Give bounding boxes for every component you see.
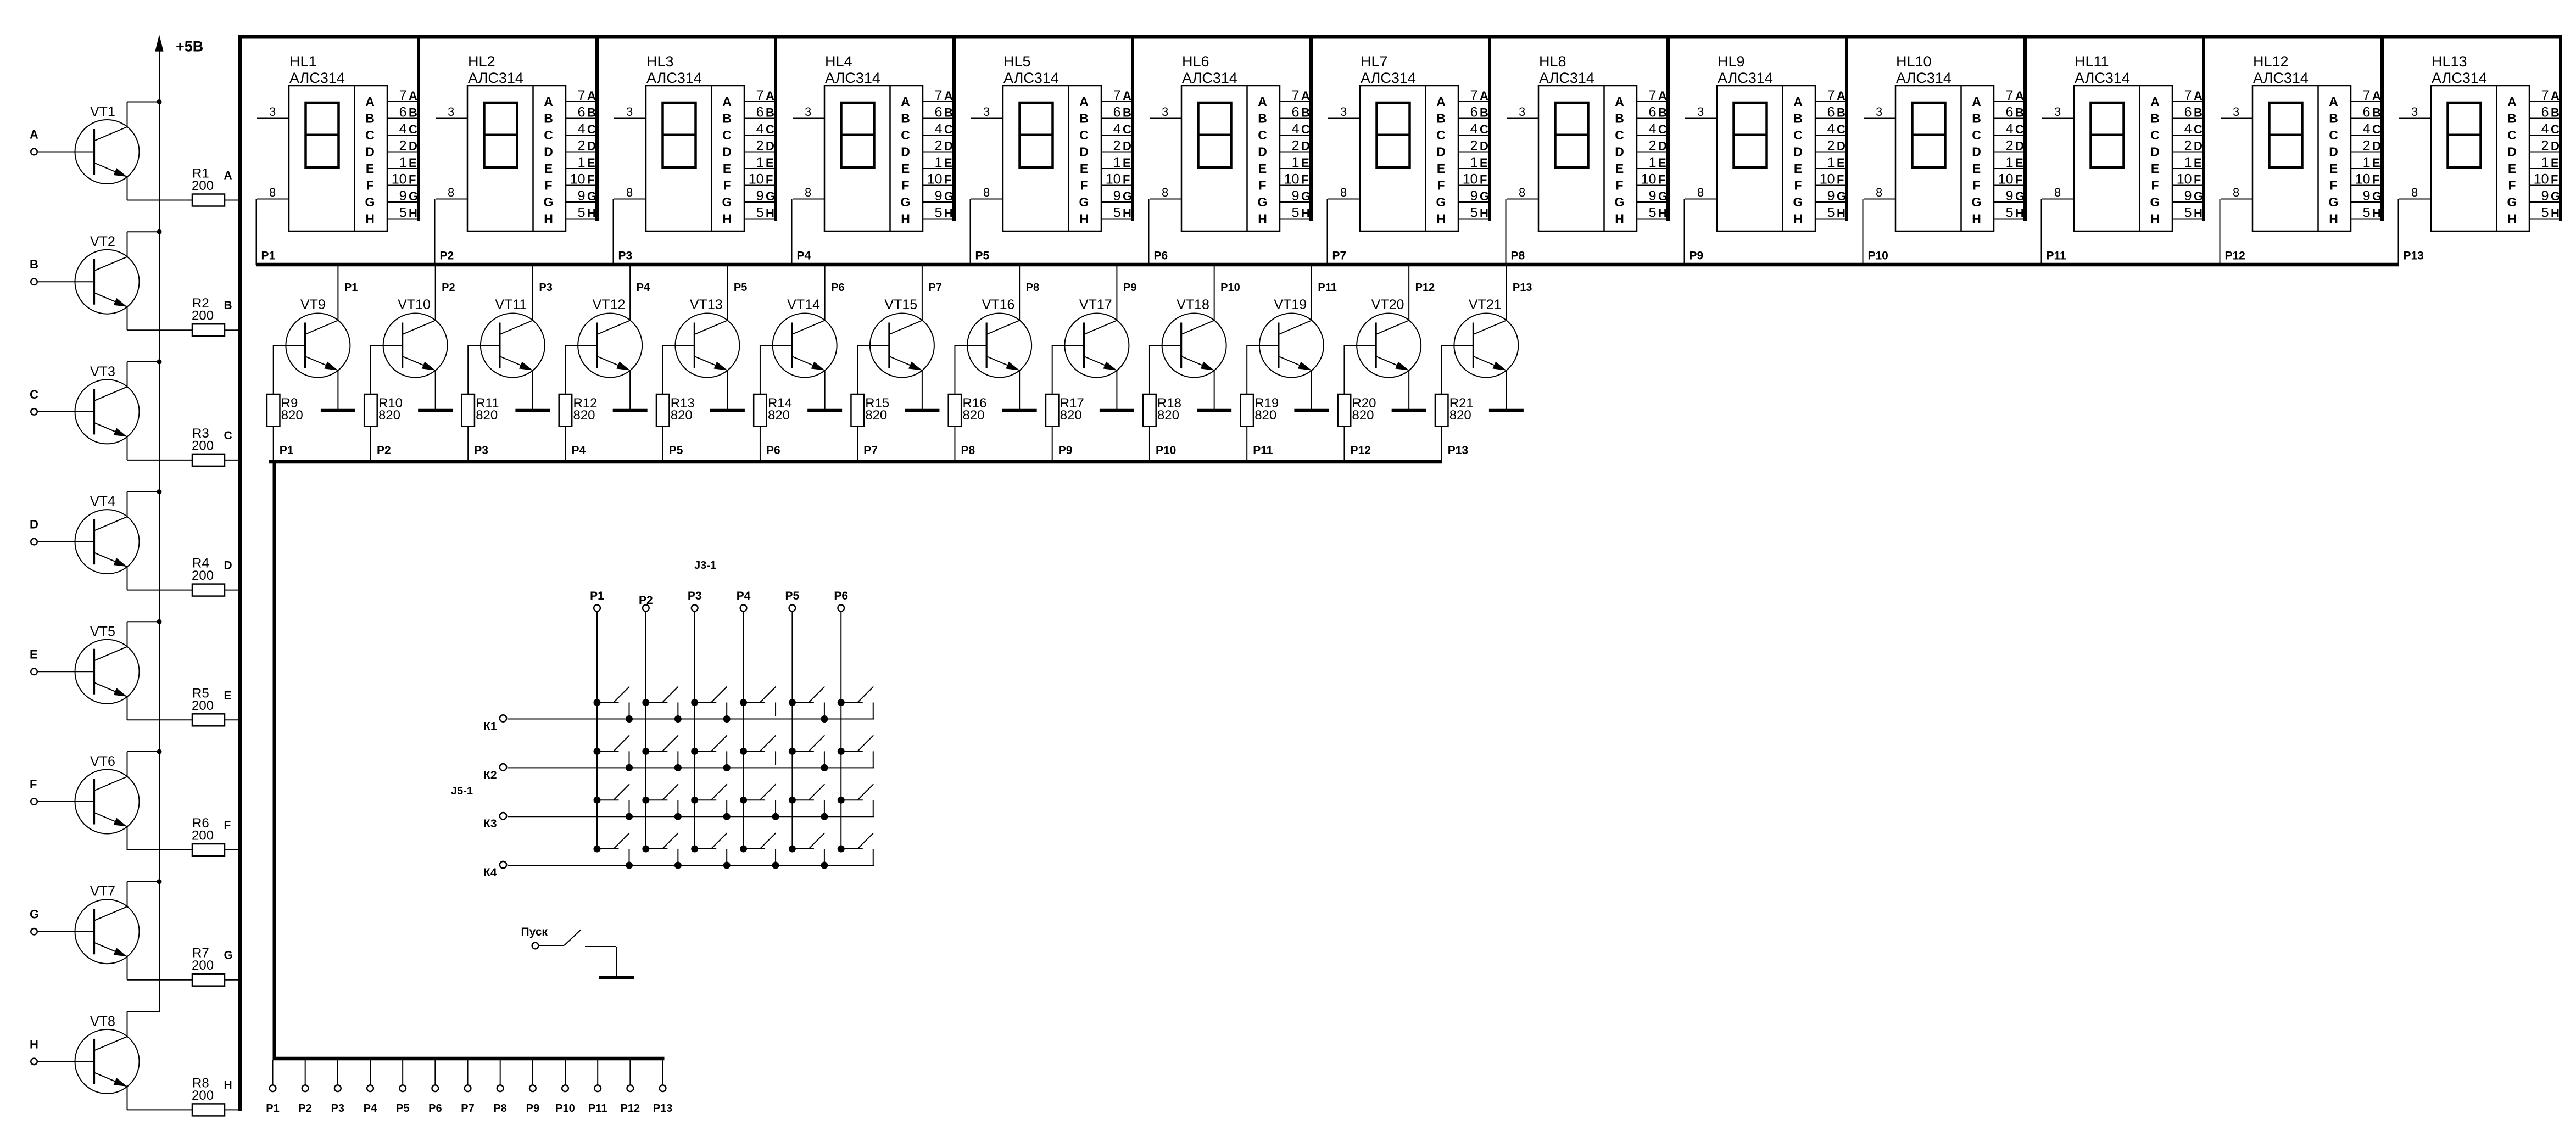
svg-text:B: B [1123,106,1131,120]
svg-text:10: 10 [1284,172,1300,187]
svg-text:P10: P10 [1220,282,1240,294]
svg-text:200: 200 [192,828,214,843]
svg-text:B: B [1972,111,1981,126]
svg-text:B: B [901,111,910,126]
svg-text:A: A [2329,94,2338,109]
svg-text:4: 4 [399,121,407,137]
svg-text:VT1: VT1 [90,104,115,120]
svg-text:200: 200 [192,178,214,193]
svg-text:8: 8 [626,186,633,199]
svg-text:9: 9 [2006,188,2014,204]
svg-text:200: 200 [192,698,214,713]
svg-text:HL7: HL7 [1361,53,1388,70]
svg-text:B: B [766,106,774,120]
svg-text:3: 3 [2411,105,2418,119]
svg-text:9: 9 [935,188,943,204]
svg-text:D: D [722,145,732,159]
svg-text:D: D [2372,139,2381,153]
svg-text:C: C [944,122,953,136]
svg-text:E: E [1972,161,1981,176]
svg-text:1: 1 [2541,155,2549,170]
svg-text:B: B [1837,106,1845,120]
svg-text:P10: P10 [555,1102,575,1115]
svg-text:H: H [2150,212,2160,226]
svg-text:6: 6 [1113,105,1121,120]
svg-text:P13: P13 [2404,250,2424,262]
svg-text:9: 9 [1113,188,1121,204]
svg-text:P1: P1 [280,444,294,457]
svg-text:G: G [544,195,554,209]
svg-text:P7: P7 [928,282,941,294]
svg-text:P2: P2 [440,250,454,262]
svg-text:P12: P12 [1350,444,1370,457]
svg-text:5: 5 [2363,205,2371,221]
svg-text:E: E [2151,161,2159,176]
svg-text:D: D [1480,139,1488,153]
svg-text:C: C [544,128,553,142]
svg-text:B: B [30,257,38,271]
svg-text:B: B [544,111,553,126]
svg-text:P4: P4 [364,1102,377,1115]
svg-text:F: F [1794,178,1802,193]
svg-text:E: E [1080,161,1088,176]
svg-text:HL12: HL12 [2253,53,2289,70]
svg-text:E: E [723,161,731,176]
svg-text:A: A [722,94,732,109]
svg-text:F: F [2015,173,2022,187]
svg-text:B: B [1793,111,1803,126]
svg-text:9: 9 [756,188,764,204]
svg-text:4: 4 [2363,121,2371,137]
svg-text:H: H [1972,212,1981,226]
svg-text:АЛС314: АЛС314 [2253,70,2309,86]
svg-text:3: 3 [448,105,454,119]
svg-text:4: 4 [578,121,586,137]
svg-text:B: B [2194,106,2203,120]
svg-text:1: 1 [2006,155,2014,170]
svg-text:P7: P7 [461,1102,474,1115]
svg-text:A: A [2551,89,2560,103]
svg-text:A: A [2194,89,2203,103]
svg-text:E: E [1301,156,1309,170]
svg-text:VT15: VT15 [884,297,917,312]
svg-text:F: F [766,173,773,187]
svg-text:АЛС314: АЛС314 [289,70,345,86]
svg-text:C: C [2194,122,2203,136]
svg-text:A: A [2507,94,2517,109]
svg-text:F: F [1437,178,1445,193]
svg-text:8: 8 [2054,186,2061,199]
svg-text:H: H [1079,212,1089,226]
svg-text:D: D [365,145,375,159]
svg-text:C: C [1123,122,1131,136]
svg-text:8: 8 [1876,186,1882,199]
svg-text:VT7: VT7 [90,884,115,899]
svg-text:A: A [1258,94,1267,109]
svg-text:820: 820 [281,408,303,423]
svg-text:5: 5 [1649,205,1657,221]
svg-text:G: G [2372,189,2382,203]
svg-text:7: 7 [2006,88,2014,103]
svg-text:J3-1: J3-1 [694,559,716,572]
svg-text:E: E [2551,156,2559,170]
svg-text:5: 5 [1827,205,1835,221]
svg-text:3: 3 [1876,105,1882,119]
svg-text:C: C [1837,122,1845,136]
svg-text:G: G [1301,189,1311,203]
svg-text:P1: P1 [344,282,358,294]
svg-text:D: D [1079,145,1089,159]
svg-text:B: B [1615,111,1624,126]
svg-text:820: 820 [671,408,693,423]
svg-text:E: E [1794,161,1802,176]
svg-text:P9: P9 [1690,250,1704,262]
svg-text:2: 2 [756,138,764,154]
svg-text:1: 1 [399,155,407,170]
svg-text:H: H [722,212,732,226]
svg-text:3: 3 [805,105,811,119]
svg-text:P2: P2 [442,282,455,294]
svg-text:D: D [1436,145,1446,159]
svg-text:820: 820 [573,408,595,423]
svg-text:G: G [2551,189,2560,203]
svg-text:H: H [2015,206,2024,220]
svg-text:10: 10 [570,172,586,187]
svg-text:G: G [1837,189,1846,203]
svg-text:P4: P4 [797,250,811,262]
svg-text:F: F [1080,178,1088,193]
svg-text:5: 5 [1292,205,1300,221]
svg-text:H: H [587,206,596,220]
svg-text:P4: P4 [737,590,751,602]
svg-text:C: C [2015,122,2024,136]
svg-text:10: 10 [1641,172,1657,187]
svg-text:VT2: VT2 [90,234,115,249]
svg-text:E: E [224,689,232,702]
svg-text:820: 820 [1449,408,1471,423]
svg-text:D: D [1301,139,1310,153]
svg-text:HL13: HL13 [2432,53,2467,70]
svg-text:200: 200 [192,568,214,583]
svg-text:E: E [2194,156,2202,170]
svg-text:D: D [766,139,774,153]
svg-text:820: 820 [476,408,498,423]
svg-text:10: 10 [2355,172,2371,187]
svg-text:B: B [2329,111,2338,126]
svg-text:F: F [901,178,909,193]
svg-text:C: C [1258,128,1267,142]
svg-text:F: F [2194,173,2201,187]
svg-text:VT4: VT4 [90,494,115,510]
svg-text:3: 3 [1162,105,1168,119]
svg-text:820: 820 [1254,408,1276,423]
svg-text:C: C [1301,122,1310,136]
svg-text:D: D [1123,139,1131,153]
svg-text:3: 3 [2233,105,2239,119]
svg-text:F: F [2508,178,2516,193]
svg-text:B: B [409,106,417,120]
svg-text:9: 9 [1649,188,1657,204]
svg-text:F: F [2329,178,2337,193]
svg-text:H: H [1123,206,1131,220]
svg-text:D: D [2150,145,2160,159]
svg-text:H: H [1301,206,1310,220]
svg-text:G: G [1480,189,1489,203]
svg-text:6: 6 [2006,105,2014,120]
svg-text:3: 3 [1697,105,1704,119]
svg-text:5: 5 [2541,205,2549,221]
svg-text:A: A [2015,89,2024,103]
svg-text:C: C [1480,122,1488,136]
svg-text:G: G [1793,195,1803,209]
svg-text:P11: P11 [588,1102,607,1115]
svg-text:HL1: HL1 [289,53,317,70]
svg-text:G: G [722,195,732,209]
svg-text:C: C [901,128,910,142]
svg-text:4: 4 [1292,121,1300,137]
svg-text:H: H [2329,212,2338,226]
svg-text:К1: К1 [483,720,497,733]
svg-text:К2: К2 [483,769,497,781]
svg-text:C: C [224,429,232,442]
svg-text:A: A [1480,89,1488,103]
svg-text:B: B [365,111,375,126]
svg-text:VT3: VT3 [90,364,115,379]
svg-text:5: 5 [1470,205,1478,221]
svg-text:1: 1 [756,155,764,170]
svg-text:F: F [1972,178,1980,193]
svg-text:D: D [1658,139,1667,153]
svg-text:9: 9 [399,188,407,204]
svg-text:H: H [1658,206,1667,220]
svg-text:P5: P5 [734,282,747,294]
svg-text:9: 9 [1470,188,1478,204]
svg-text:G: G [2329,195,2339,209]
svg-text:C: C [587,122,596,136]
svg-text:3: 3 [626,105,633,119]
svg-text:4: 4 [1827,121,1835,137]
svg-text:D: D [2329,145,2338,159]
svg-text:9: 9 [2363,188,2371,204]
svg-text:P9: P9 [526,1102,539,1115]
svg-text:3: 3 [2054,105,2061,119]
svg-text:10: 10 [1463,172,1478,187]
svg-text:G: G [2194,189,2203,203]
svg-text:VT14: VT14 [787,297,820,312]
svg-text:C: C [2329,128,2338,142]
svg-text:E: E [1615,161,1624,176]
svg-text:D: D [2507,145,2517,159]
svg-text:P12: P12 [2225,250,2245,262]
svg-text:D: D [1972,145,1981,159]
svg-text:H: H [2507,212,2517,226]
svg-text:F: F [587,173,594,187]
svg-text:A: A [1972,94,1981,109]
svg-text:G: G [901,195,911,209]
svg-text:7: 7 [2363,88,2371,103]
svg-text:C: C [766,122,774,136]
svg-text:8: 8 [448,186,454,199]
svg-text:10: 10 [749,172,764,187]
svg-text:P6: P6 [766,444,780,457]
svg-text:F: F [2551,173,2558,187]
svg-text:P3: P3 [688,590,702,602]
svg-text:F: F [224,819,231,832]
svg-text:9: 9 [1292,188,1300,204]
svg-text:+5В: +5В [176,38,203,55]
svg-text:P1: P1 [266,1102,279,1115]
svg-text:H: H [1436,212,1446,226]
svg-text:VT20: VT20 [1371,297,1404,312]
svg-text:P2: P2 [377,444,391,457]
svg-text:P2: P2 [298,1102,311,1115]
svg-text:7: 7 [399,88,407,103]
svg-text:3: 3 [983,105,990,119]
svg-text:3: 3 [269,105,276,119]
svg-text:J5-1: J5-1 [451,785,473,797]
svg-text:P11: P11 [1318,282,1336,294]
svg-text:C: C [1615,128,1624,142]
svg-text:B: B [1258,111,1267,126]
svg-text:G: G [2015,189,2025,203]
svg-text:G: G [2150,195,2160,209]
svg-text:АЛС314: АЛС314 [1718,70,1773,86]
svg-text:E: E [2372,156,2380,170]
svg-text:H: H [30,1037,38,1051]
svg-text:5: 5 [1113,205,1121,221]
svg-text:VT19: VT19 [1274,297,1307,312]
svg-text:4: 4 [1649,121,1657,137]
svg-text:2: 2 [578,138,586,154]
svg-text:АЛС314: АЛС314 [2432,70,2487,86]
svg-text:C: C [722,128,732,142]
svg-text:10: 10 [2177,172,2192,187]
svg-text:820: 820 [865,408,887,423]
svg-text:H: H [2372,206,2381,220]
svg-text:P1: P1 [261,250,276,262]
svg-text:АЛС314: АЛС314 [1182,70,1237,86]
svg-text:C: C [1972,128,1981,142]
svg-text:B: B [944,106,953,120]
svg-text:D: D [901,145,910,159]
svg-text:8: 8 [1340,186,1347,199]
svg-text:P3: P3 [539,282,552,294]
svg-text:5: 5 [2184,205,2192,221]
svg-text:E: E [1480,156,1488,170]
svg-text:200: 200 [192,1088,214,1103]
svg-text:A: A [365,94,375,109]
svg-text:VT18: VT18 [1177,297,1209,312]
svg-text:8: 8 [983,186,990,199]
svg-text:АЛС314: АЛС314 [825,70,880,86]
svg-text:D: D [1615,145,1624,159]
svg-text:6: 6 [935,105,943,120]
svg-text:8: 8 [805,186,811,199]
svg-text:A: A [1123,89,1131,103]
svg-text:H: H [1793,212,1803,226]
svg-text:B: B [1658,106,1667,120]
svg-text:A: A [409,89,417,103]
svg-text:C: C [1079,128,1089,142]
svg-text:F: F [723,178,731,193]
svg-text:H: H [544,212,553,226]
svg-text:E: E [766,156,774,170]
svg-text:F: F [1480,173,1487,187]
svg-text:8: 8 [1519,186,1525,199]
svg-text:2: 2 [1470,138,1478,154]
svg-text:7: 7 [578,88,586,103]
svg-text:F: F [30,777,37,791]
svg-text:A: A [1079,94,1089,109]
svg-text:820: 820 [962,408,984,423]
svg-text:К4: К4 [483,866,497,879]
svg-text:5: 5 [935,205,943,221]
svg-text:6: 6 [756,105,764,120]
svg-text:A: A [587,89,596,103]
svg-text:G: G [1436,195,1446,209]
svg-text:P8: P8 [493,1102,506,1115]
svg-text:P8: P8 [1511,250,1525,262]
svg-text:F: F [1615,178,1623,193]
svg-text:G: G [1123,189,1132,203]
svg-text:P6: P6 [428,1102,442,1115]
svg-text:B: B [1079,111,1089,126]
svg-text:200: 200 [192,958,214,973]
svg-text:H: H [409,206,417,220]
svg-text:P8: P8 [1026,282,1039,294]
svg-text:7: 7 [1113,88,1121,103]
svg-text:E: E [544,161,553,176]
svg-text:C: C [1436,128,1446,142]
svg-text:2: 2 [2363,138,2371,154]
svg-text:F: F [1258,178,1266,193]
svg-text:H: H [2194,206,2203,220]
svg-text:P1: P1 [590,590,604,602]
svg-text:F: F [1301,173,1308,187]
svg-text:A: A [1301,89,1310,103]
svg-text:8: 8 [269,186,276,199]
svg-text:E: E [1123,156,1131,170]
svg-text:1: 1 [1113,155,1121,170]
svg-text:1: 1 [2363,155,2371,170]
svg-text:F: F [1658,173,1665,187]
svg-text:8: 8 [2233,186,2239,199]
svg-text:7: 7 [1827,88,1835,103]
svg-text:C: C [2507,128,2517,142]
svg-text:B: B [2015,106,2024,120]
svg-text:D: D [944,139,953,153]
svg-text:VT5: VT5 [90,624,115,639]
svg-text:820: 820 [378,408,400,423]
svg-text:P6: P6 [834,590,848,602]
svg-text:G: G [1972,195,1982,209]
svg-text:P3: P3 [331,1102,344,1115]
svg-text:H: H [224,1079,232,1091]
svg-text:HL5: HL5 [1003,53,1031,70]
svg-text:H: H [1837,206,1845,220]
svg-text:C: C [2551,122,2560,136]
svg-text:5: 5 [578,205,586,221]
svg-text:820: 820 [1060,408,1082,423]
svg-text:2: 2 [1827,138,1835,154]
svg-text:4: 4 [2184,121,2192,137]
svg-text:E: E [2508,161,2516,176]
svg-text:10: 10 [2534,172,2549,187]
svg-text:A: A [30,128,38,142]
svg-text:B: B [2150,111,2160,126]
svg-text:B: B [587,106,596,120]
svg-text:6: 6 [2541,105,2549,120]
